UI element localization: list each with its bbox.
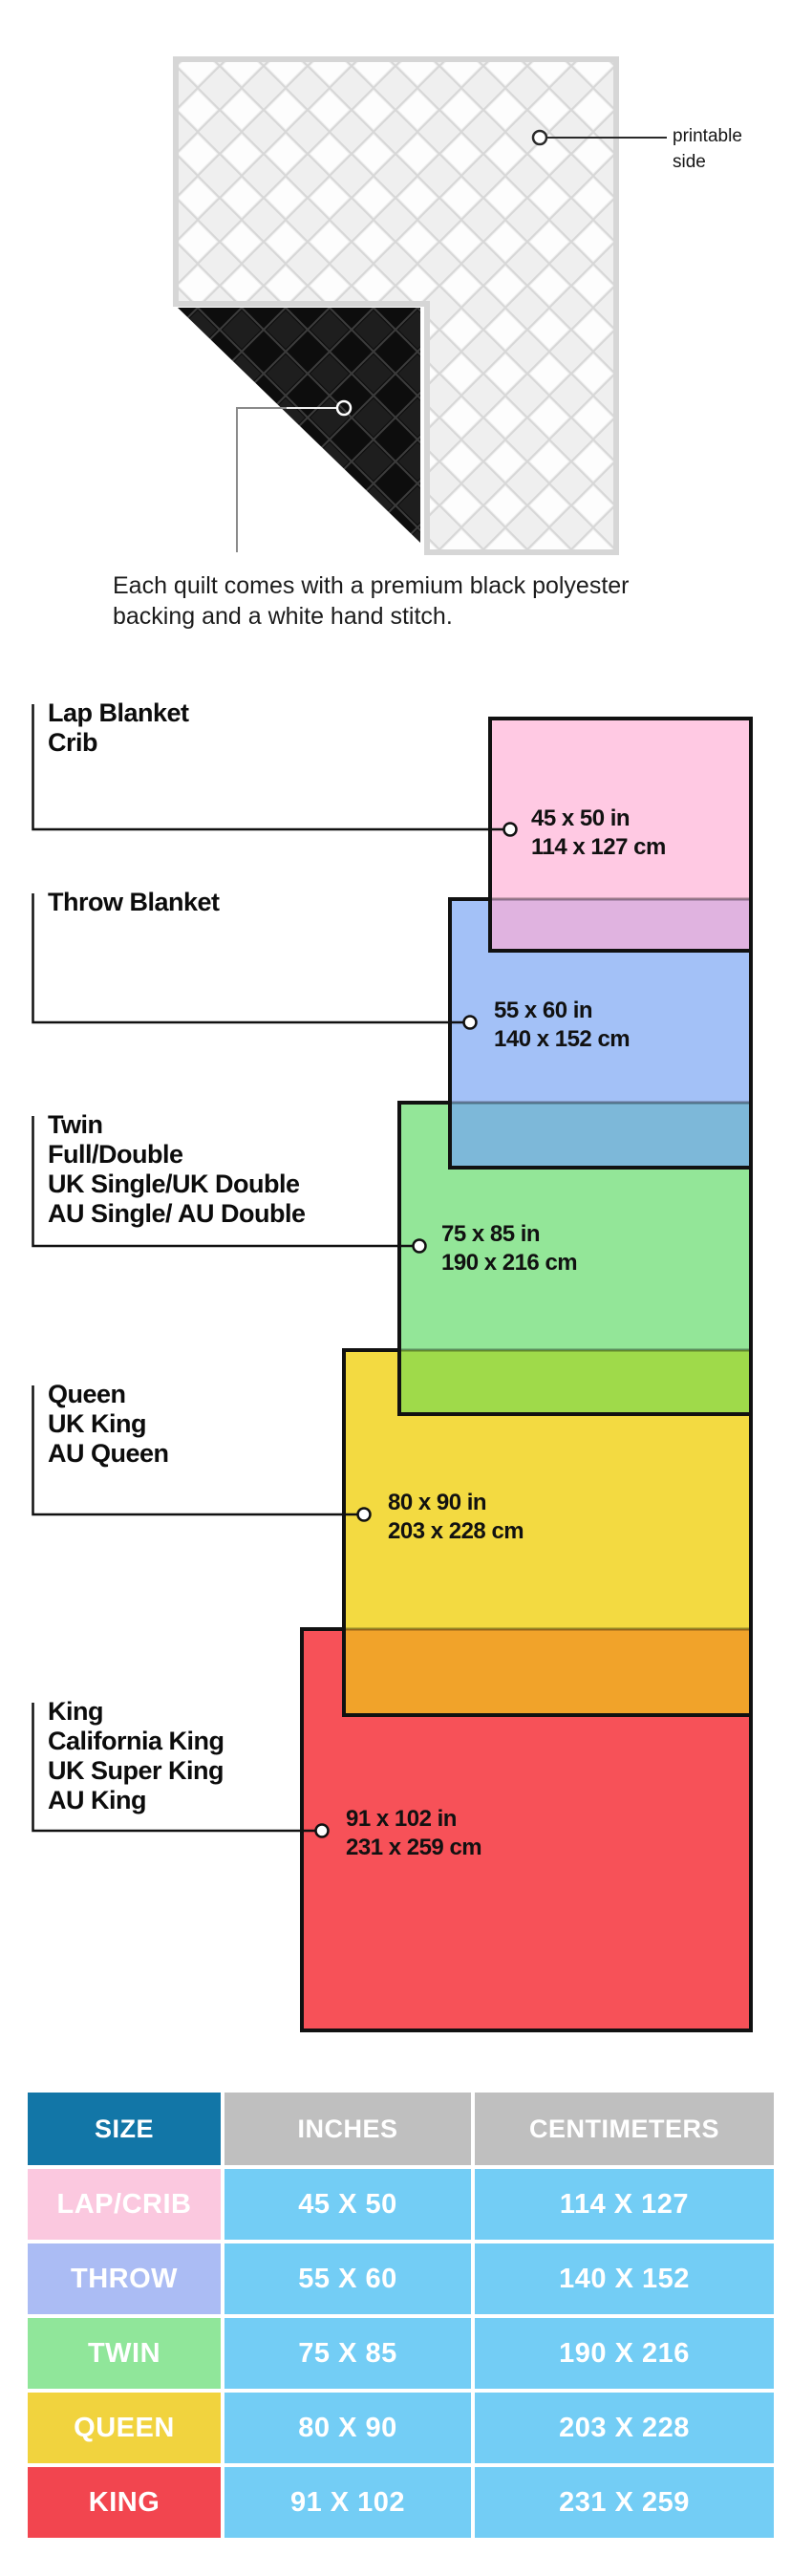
- callout-marker-twin: [414, 1240, 426, 1253]
- quilt-caption-line1: Each quilt comes with a premium black po…: [113, 570, 630, 601]
- size-text-twin-in: 75 x 85 in: [441, 1220, 577, 1249]
- size-text-lap-crib: 45 x 50 in 114 x 127 cm: [531, 805, 666, 862]
- size-text-queen: 80 x 90 in 203 x 228 cm: [388, 1489, 524, 1546]
- table-row-twin: TWIN 75 X 85 190 X 216: [28, 2318, 774, 2389]
- overlap-lap-throw: [490, 899, 751, 951]
- table-cell-king-size: KING: [28, 2467, 221, 2538]
- table-header-centimeters: CENTIMETERS: [475, 2093, 774, 2165]
- table-header-inches: INCHES: [224, 2093, 471, 2165]
- printable-side-label-line1: printable: [673, 123, 742, 149]
- label-throw: Throw Blanket: [48, 888, 220, 917]
- label-lap-crib: Lap Blanket Crib: [48, 698, 189, 758]
- table-header-size: SIZE: [28, 2093, 221, 2165]
- table-cell-throw-cm: 140 X 152: [475, 2243, 774, 2314]
- quilt-caption: Each quilt comes with a premium black po…: [113, 570, 630, 632]
- size-text-king-cm: 231 x 259 cm: [346, 1834, 481, 1862]
- label-queen-line2: UK King: [48, 1409, 169, 1439]
- overlap-throw-twin: [450, 1103, 751, 1168]
- size-text-lap-crib-cm: 114 x 127 cm: [531, 833, 666, 862]
- printable-side-marker: [533, 131, 546, 144]
- table-cell-queen-inches: 80 X 90: [224, 2393, 471, 2463]
- table-cell-throw-size: THROW: [28, 2243, 221, 2314]
- table-cell-lap-crib-cm: 114 X 127: [475, 2169, 774, 2240]
- overlap-queen-king: [344, 1629, 751, 1715]
- callout-marker-lap-crib: [504, 824, 517, 836]
- quilt-backing-black-fold: [178, 308, 420, 543]
- table-cell-twin-size: TWIN: [28, 2318, 221, 2389]
- size-text-lap-crib-in: 45 x 50 in: [531, 805, 666, 833]
- size-text-king: 91 x 102 in 231 x 259 cm: [346, 1805, 481, 1862]
- callout-marker-throw: [464, 1017, 477, 1029]
- size-text-queen-in: 80 x 90 in: [388, 1489, 524, 1517]
- label-king-line4: AU King: [48, 1786, 224, 1815]
- label-king-line3: UK Super King: [48, 1756, 224, 1786]
- table-cell-lap-crib-inches: 45 X 50: [224, 2169, 471, 2240]
- quilt-caption-line2: backing and a white hand stitch.: [113, 601, 630, 632]
- label-queen-line1: Queen: [48, 1380, 169, 1409]
- label-queen-line3: AU Queen: [48, 1439, 169, 1469]
- size-text-throw: 55 x 60 in 140 x 152 cm: [494, 997, 630, 1054]
- table-cell-throw-inches: 55 X 60: [224, 2243, 471, 2314]
- table-row-lap-crib: LAP/CRIB 45 X 50 114 X 127: [28, 2169, 774, 2240]
- table-cell-twin-inches: 75 X 85: [224, 2318, 471, 2389]
- table-cell-twin-cm: 190 X 216: [475, 2318, 774, 2389]
- label-twin-line3: UK Single/UK Double: [48, 1170, 306, 1199]
- size-text-throw-in: 55 x 60 in: [494, 997, 630, 1025]
- label-twin-line4: AU Single/ AU Double: [48, 1199, 306, 1229]
- table-row-throw: THROW 55 X 60 140 X 152: [28, 2243, 774, 2314]
- table-cell-queen-size: QUEEN: [28, 2393, 221, 2463]
- label-king-line1: King: [48, 1697, 224, 1727]
- table-cell-queen-cm: 203 X 228: [475, 2393, 774, 2463]
- size-table: SIZE INCHES CENTIMETERS LAP/CRIB 45 X 50…: [28, 2093, 774, 2542]
- callout-marker-queen: [358, 1509, 371, 1521]
- size-text-twin: 75 x 85 in 190 x 216 cm: [441, 1220, 577, 1277]
- size-text-king-in: 91 x 102 in: [346, 1805, 481, 1834]
- table-header-row: SIZE INCHES CENTIMETERS: [28, 2093, 774, 2165]
- table-cell-king-inches: 91 X 102: [224, 2467, 471, 2538]
- printable-side-label: printable side: [673, 123, 742, 175]
- table-cell-king-cm: 231 X 259: [475, 2467, 774, 2538]
- overlap-twin-queen: [399, 1350, 751, 1414]
- table-row-king: KING 91 X 102 231 X 259: [28, 2467, 774, 2538]
- label-queen: Queen UK King AU Queen: [48, 1380, 169, 1469]
- label-lap-crib-line1: Lap Blanket: [48, 698, 189, 728]
- quilt-size-chart-page: printable side Each quilt comes with a p…: [0, 0, 791, 2576]
- table-row-queen: QUEEN 80 X 90 203 X 228: [28, 2393, 774, 2463]
- quilt-image: [0, 0, 791, 669]
- label-twin: Twin Full/Double UK Single/UK Double AU …: [48, 1110, 306, 1229]
- printable-side-label-line2: side: [673, 149, 742, 175]
- table-cell-lap-crib-size: LAP/CRIB: [28, 2169, 221, 2240]
- label-king: King California King UK Super King AU Ki…: [48, 1697, 224, 1815]
- size-text-throw-cm: 140 x 152 cm: [494, 1025, 630, 1054]
- label-twin-line1: Twin: [48, 1110, 306, 1140]
- label-throw-line1: Throw Blanket: [48, 888, 220, 917]
- size-text-twin-cm: 190 x 216 cm: [441, 1249, 577, 1277]
- label-lap-crib-line2: Crib: [48, 728, 189, 758]
- label-king-line2: California King: [48, 1727, 224, 1756]
- label-twin-line2: Full/Double: [48, 1140, 306, 1170]
- callout-marker-king: [316, 1825, 329, 1837]
- size-text-queen-cm: 203 x 228 cm: [388, 1517, 524, 1546]
